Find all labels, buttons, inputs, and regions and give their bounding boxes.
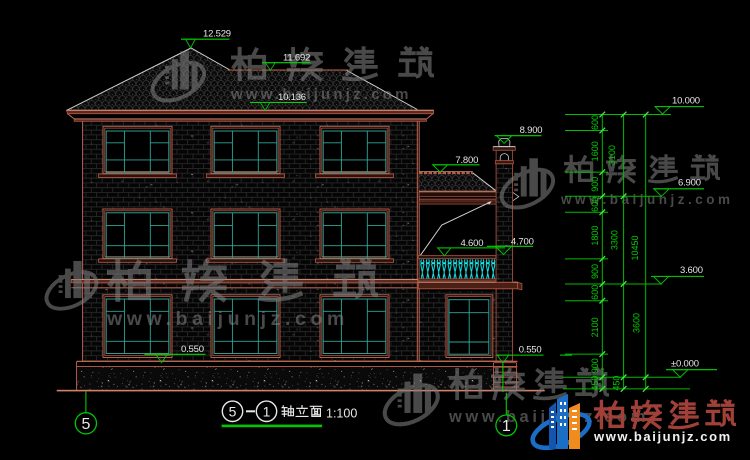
svg-text:www.baijunjz.com: www.baijunjz.com: [560, 192, 734, 207]
svg-text:10.000: 10.000: [672, 95, 700, 106]
svg-text:900: 900: [590, 358, 600, 373]
svg-text:7.800: 7.800: [455, 155, 478, 166]
svg-text:0.550: 0.550: [519, 345, 542, 356]
svg-text:5: 5: [81, 416, 90, 433]
svg-text:3100: 3100: [607, 145, 617, 165]
svg-text:www.baijunjz.com: www.baijunjz.com: [230, 86, 412, 103]
svg-text:450: 450: [590, 376, 600, 391]
svg-text:11.692: 11.692: [283, 53, 310, 64]
svg-text:0.550: 0.550: [181, 344, 204, 355]
svg-text:12.529: 12.529: [203, 28, 231, 39]
svg-text:1: 1: [502, 418, 511, 435]
svg-text:600: 600: [590, 115, 600, 130]
svg-text:6.900: 6.900: [678, 178, 701, 189]
svg-text:www.baijunjz.com: www.baijunjz.com: [106, 308, 349, 330]
svg-text:10.136: 10.136: [278, 92, 306, 103]
svg-text:900: 900: [590, 264, 600, 279]
svg-text:www.baijunjz.com: www.baijunjz.com: [593, 429, 732, 444]
svg-text:3300: 3300: [610, 230, 620, 250]
svg-text:4.600: 4.600: [461, 238, 484, 249]
svg-text:5: 5: [229, 403, 237, 419]
svg-text:3600: 3600: [632, 313, 642, 333]
svg-text:4.700: 4.700: [511, 236, 534, 247]
svg-text:1800: 1800: [590, 226, 600, 246]
svg-text:8.900: 8.900: [520, 125, 543, 136]
svg-text:600: 600: [590, 285, 600, 300]
svg-text:1600: 1600: [590, 141, 600, 161]
svg-text:±0.000: ±0.000: [671, 359, 699, 370]
svg-text:450: 450: [611, 376, 621, 391]
svg-text:2100: 2100: [590, 317, 600, 337]
svg-text:900: 900: [590, 177, 600, 192]
svg-text:3.600: 3.600: [680, 265, 703, 276]
svg-text:10450: 10450: [630, 235, 640, 260]
svg-text:600: 600: [590, 197, 600, 212]
svg-text:1:100: 1:100: [326, 407, 357, 421]
svg-text:1: 1: [263, 403, 271, 419]
